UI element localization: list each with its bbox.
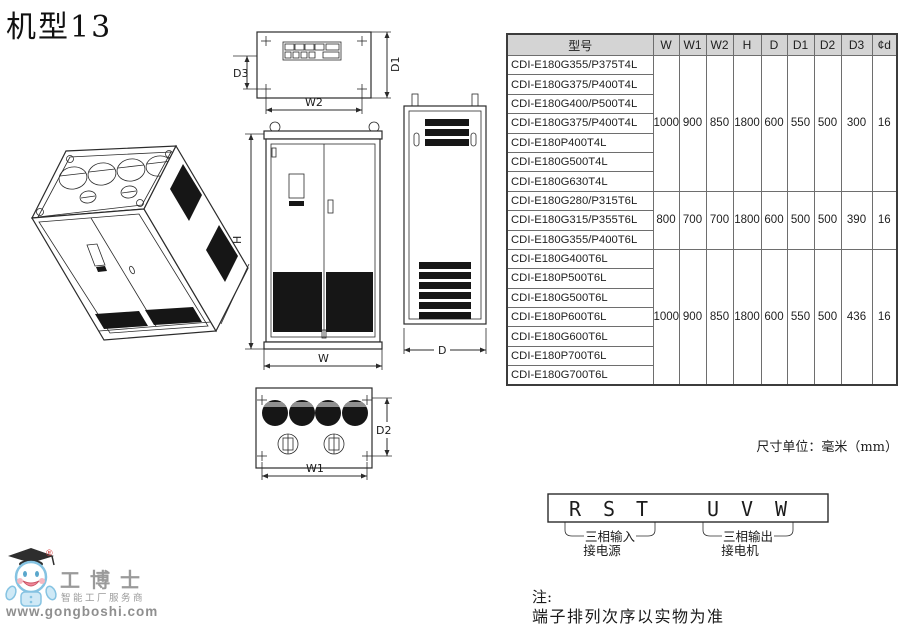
col-header: D1 xyxy=(787,34,814,56)
model-cell: CDI-E180G400T6L xyxy=(507,249,653,268)
model-cell: CDI-E180G375/P400T4L xyxy=(507,114,653,133)
model-cell: CDI-E180G355/P375T4L xyxy=(507,56,653,75)
col-header: W1 xyxy=(679,34,706,56)
logo: ® 工博士 智能工厂服务商 www.gongboshi.com xyxy=(4,540,184,630)
side-top-vents xyxy=(425,119,469,146)
terminal-diagram: R S T U V W 三相输入 接电源 三相输出 接电机 xyxy=(540,487,840,579)
spec-table-body: CDI-E180G355/P375T4L10009008501800600550… xyxy=(507,56,897,386)
table-row: CDI-E180G355/P375T4L10009008501800600550… xyxy=(507,56,897,75)
value-cell: 500 xyxy=(814,249,841,385)
table-row: CDI-E180G400T6L1000900850180060055050043… xyxy=(507,249,897,268)
svg-text:D1: D1 xyxy=(389,57,402,72)
value-cell: 550 xyxy=(787,249,814,385)
page-title: 机型13 xyxy=(6,2,112,46)
col-header: 型号 xyxy=(507,34,653,56)
value-cell: 16 xyxy=(872,191,897,249)
output-label-line1: 三相输出 xyxy=(723,529,773,544)
model-cell: CDI-E180G500T4L xyxy=(507,152,653,171)
model-cell: CDI-E180G280/P315T6L xyxy=(507,191,653,210)
isometric-view-drawing xyxy=(12,128,256,370)
value-cell: 600 xyxy=(761,249,787,385)
value-cell: 600 xyxy=(761,191,787,249)
iso-front-vent xyxy=(95,311,148,329)
value-cell: 390 xyxy=(841,191,872,249)
value-cell: 300 xyxy=(841,56,872,192)
model-cell: CDI-E180P600T6L xyxy=(507,308,653,327)
iso-front-vent xyxy=(145,307,202,325)
bottom-outline xyxy=(256,388,372,468)
col-header: W xyxy=(653,34,679,56)
input-label-line2: 接电源 xyxy=(583,543,621,558)
note-block: 注: 端子排列次序以实物为准 xyxy=(532,588,725,626)
spec-table-head-row: 型号WW1W2HDD1D2D3¢d xyxy=(507,34,897,56)
value-cell: 850 xyxy=(706,249,733,385)
col-header: D2 xyxy=(814,34,841,56)
model-cell: CDI-E180P700T6L xyxy=(507,346,653,365)
value-cell: 800 xyxy=(653,191,679,249)
side-view-drawing: D xyxy=(392,86,504,378)
svg-text:W: W xyxy=(318,352,329,365)
note-label: 注: xyxy=(532,588,725,607)
model-cell: CDI-E180G375/P400T4L xyxy=(507,75,653,94)
model-cell: CDI-E180G315/P355T6L xyxy=(507,211,653,230)
model-cell: CDI-E180G500T6L xyxy=(507,288,653,307)
value-cell: 1800 xyxy=(733,191,761,249)
unit-note: 尺寸单位：毫米（mm） xyxy=(700,436,898,455)
front-view-drawing: H W xyxy=(233,104,405,376)
value-cell: 500 xyxy=(814,191,841,249)
value-cell: 550 xyxy=(787,56,814,192)
model-cell: CDI-E180G400/P500T4L xyxy=(507,94,653,113)
value-cell: 1800 xyxy=(733,249,761,385)
col-header: H xyxy=(733,34,761,56)
value-cell: 500 xyxy=(814,56,841,192)
side-body xyxy=(404,106,486,324)
terminal-t: T xyxy=(636,497,648,521)
input-label-line1: 三相输入 xyxy=(585,529,636,544)
terminal-block xyxy=(283,42,341,60)
value-cell: 16 xyxy=(872,249,897,385)
logo-brand: 工博士 xyxy=(60,564,150,593)
svg-text:W1: W1 xyxy=(306,462,324,475)
value-cell: 500 xyxy=(787,191,814,249)
svg-text:D3: D3 xyxy=(233,67,248,80)
model-cell: CDI-E180G630T4L xyxy=(507,172,653,191)
model-cell: CDI-E180P400T4L xyxy=(507,133,653,152)
logo-website: www.gongboshi.com xyxy=(6,604,158,619)
registered-mark: ® xyxy=(46,548,53,558)
model-cell: CDI-E180G700T6L xyxy=(507,366,653,385)
value-cell: 700 xyxy=(706,191,733,249)
col-header: D3 xyxy=(841,34,872,56)
front-vent xyxy=(273,272,322,332)
value-cell: 436 xyxy=(841,249,872,385)
note-text: 端子排列次序以实物为准 xyxy=(532,607,725,626)
value-cell: 1000 xyxy=(653,249,679,385)
terminal-v: V xyxy=(741,497,753,521)
model-cell: CDI-E180G355/P400T6L xyxy=(507,230,653,249)
value-cell: 1000 xyxy=(653,56,679,192)
model-cell: CDI-E180G600T6L xyxy=(507,327,653,346)
logo-tagline: 智能工厂服务商 xyxy=(61,590,145,604)
front-vent xyxy=(326,272,373,332)
svg-text:D2: D2 xyxy=(376,424,391,437)
model-cell: CDI-E180P500T6L xyxy=(507,269,653,288)
value-cell: 900 xyxy=(679,56,706,192)
svg-text:H: H xyxy=(233,236,244,244)
terminal-r: R xyxy=(569,497,582,521)
value-cell: 700 xyxy=(679,191,706,249)
bottom-view-drawing: W1 D2 xyxy=(236,382,408,486)
dim-d2: D2 xyxy=(372,398,392,456)
col-header: ¢d xyxy=(872,34,897,56)
value-cell: 900 xyxy=(679,249,706,385)
value-cell: 850 xyxy=(706,56,733,192)
dim-h: H xyxy=(233,134,264,349)
output-label-line2: 接电机 xyxy=(721,543,759,558)
svg-text:D: D xyxy=(438,344,446,357)
value-cell: 16 xyxy=(872,56,897,192)
terminal-w: W xyxy=(775,497,788,521)
dim-d: D xyxy=(404,328,486,357)
terminal-u: U xyxy=(707,497,719,521)
spec-table: 型号WW1W2HDD1D2D3¢d CDI-E180G355/P375T4L10… xyxy=(506,33,898,386)
value-cell: 600 xyxy=(761,56,787,192)
value-cell: 1800 xyxy=(733,56,761,192)
terminal-s: S xyxy=(603,497,615,521)
table-row: CDI-E180G280/P315T6L80070070018006005005… xyxy=(507,191,897,210)
col-header: W2 xyxy=(706,34,733,56)
col-header: D xyxy=(761,34,787,56)
